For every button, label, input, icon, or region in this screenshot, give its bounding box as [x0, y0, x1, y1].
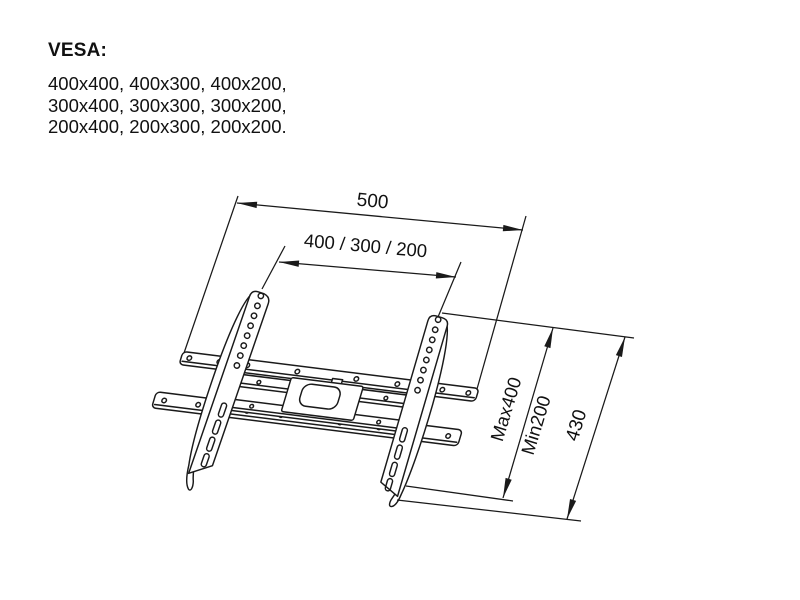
dimension-label-total-width: 500 [356, 190, 390, 214]
tv-bracket-left [176, 287, 271, 494]
page: VESA: 400x400, 400x300, 400x200, 300x400… [0, 0, 800, 600]
extension-line [442, 313, 634, 338]
dimension-label-max-height: Max400 [486, 375, 525, 444]
extension-line [262, 246, 285, 289]
extension-line [397, 500, 581, 521]
dimension-line [279, 262, 456, 277]
extension-line [438, 262, 461, 317]
center-plate-opening [298, 383, 343, 410]
extension-line [184, 196, 238, 353]
wall-assembly [152, 287, 479, 510]
dimension-label-vesa-width: 400 / 300 / 200 [303, 230, 428, 262]
extension-line [406, 486, 513, 501]
extension-line [477, 216, 526, 389]
dimension-vesa-width: 400 / 300 / 200 [262, 230, 461, 317]
tv-bracket-right [375, 314, 457, 510]
dimension-label-min-height: Min200 [517, 393, 555, 457]
dimension-label-total-height: 430 [562, 407, 591, 443]
mount-diagram: 500 400 / 300 / 200 Max400 Min200 430 [0, 0, 800, 600]
